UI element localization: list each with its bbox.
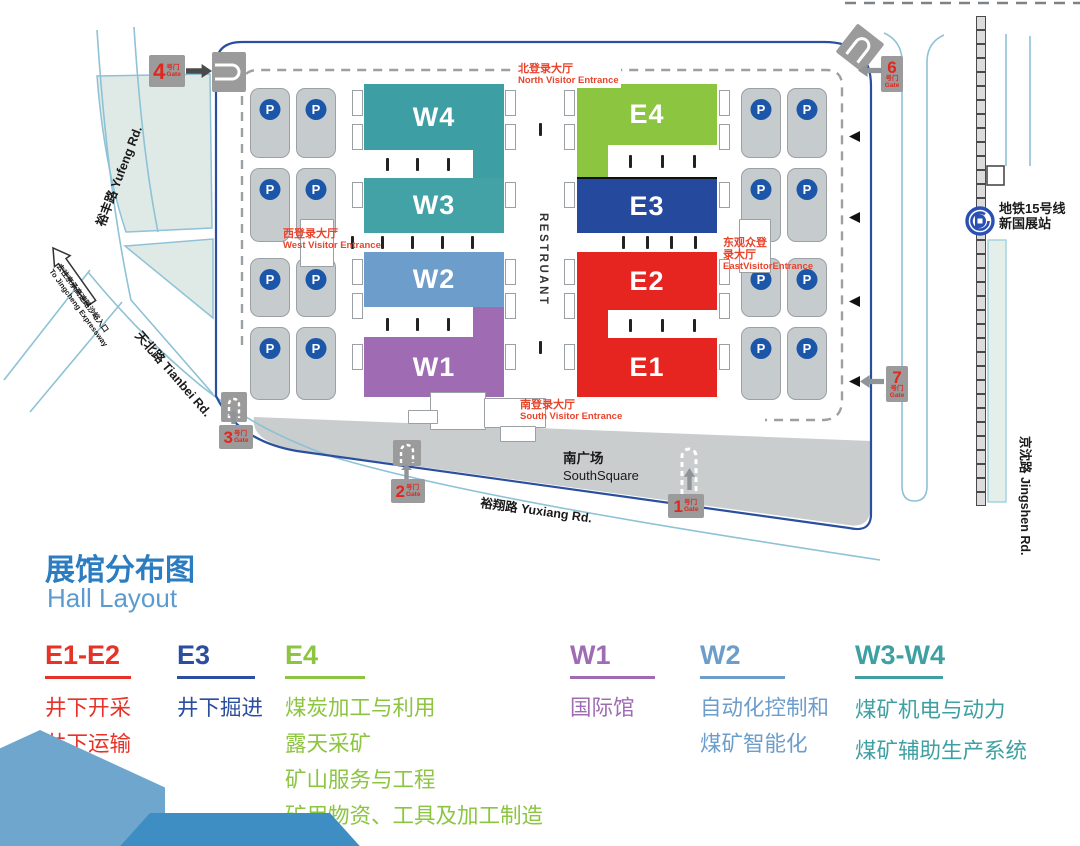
gate-arrow-icon [860,375,884,388]
dock [564,293,575,319]
parking-icon: P [306,99,327,120]
parking-icon: P [751,179,772,200]
corridor-ticks [372,315,464,333]
south-square-label: 南广场 SouthSquare [563,450,639,484]
parking-lot: P [787,88,827,158]
legend-code-w3w4: W3-W4 [855,640,945,671]
legend-subtitle: Hall Layout [47,583,177,614]
dock [719,344,730,370]
parking-icon: P [260,338,281,359]
dock [352,344,363,370]
dock [505,182,516,208]
dock [719,293,730,319]
dock [352,259,363,285]
dock [505,124,516,150]
gate-4: 4 号门Gate [149,55,185,87]
legend-code-e3: E3 [177,640,210,671]
parking-icon: P [260,99,281,120]
parking-lot: P [250,258,290,317]
parking-icon: P [260,179,281,200]
hall-e3-label: E3 [629,191,664,222]
dock [564,259,575,285]
metro-track [976,16,986,506]
platform-box [987,166,1004,185]
corridor-ticks [615,316,710,334]
hall-e4-wing [577,145,608,177]
legend-underline [570,676,655,679]
hall-e4-label: E4 [629,99,664,130]
cross-corridor-ticks [612,235,707,250]
hall-w3-label: W3 [413,190,456,221]
hall-e1-label: E1 [629,352,664,383]
parking-icon: P [306,338,327,359]
hall-e4: E4 [577,84,717,145]
dock [564,124,575,150]
parking-lot: P [741,327,781,400]
hall-w3: W3 [364,178,504,233]
hall-e2-label: E2 [629,266,664,297]
east-entrance-label: 东观众登 录大厅 EastVisitorEntrance [723,237,813,273]
outbuilding [408,410,438,424]
yufeng-road-label: 裕丰路 Yufeng Rd. [90,123,146,229]
legend-underline [285,676,365,679]
dock [564,344,575,370]
legend-code-w1: W1 [570,640,611,671]
hall-w4: W4 [364,84,504,150]
gate-arrow-icon [684,468,695,490]
hall-w1: W1 [364,337,504,397]
legend-underline [700,676,785,679]
jingshen-road-label: 京沈路 Jingshen Rd. [1017,436,1036,555]
parking-icon: P [260,269,281,290]
legend-underline [45,676,131,679]
parking-lot: P [787,168,827,242]
uturn-icon [393,440,421,466]
legend-items-w2: 自动化控制和 煤矿智能化 [700,690,829,762]
hall-w2: W2 [364,252,504,307]
yuxiang-road-label: 裕翔路 Yuxiang Rd. [479,492,593,526]
legend-code-e4: E4 [285,640,318,671]
hall-w2-label: W2 [413,264,456,295]
hall-w4-wing [473,150,504,178]
gate-arrow-icon [401,464,412,479]
gate-2: 2 号门Gate [391,479,425,503]
north-entrance-label: 北登录大厅 North Visitor Entrance [516,62,621,88]
parking-lot: P [787,327,827,400]
gate-arrow-icon [186,64,212,78]
dock [505,293,516,319]
hall-w1-wing [473,307,504,337]
center-tick [534,122,546,137]
corridor-ticks [615,152,710,170]
parking-icon: P [306,269,327,290]
dock [352,182,363,208]
west-entrance-label: 西登录大厅 West Visitor Entrance [283,228,381,252]
map-graphics [0,0,1080,620]
legend-items-w3w4: 煤矿机电与动力 煤矿辅助生产系统 [855,690,1027,772]
parking-icon: P [306,179,327,200]
dock [564,90,575,116]
tianbei-road-label: 天北路 Tianbei Rd. [132,326,217,420]
parking-lot: P [296,88,336,158]
uturn-icon [212,52,246,92]
parking-icon: P [797,99,818,120]
parking-lot: P [250,88,290,158]
dock [505,259,516,285]
gate-3: 3 号门Gate [219,425,253,449]
legend-underline [177,676,255,679]
south-entrance-building [430,392,486,430]
legend-items-e4: 煤炭加工与利用 露天采矿 矿山服务与工程 矿用物资、工具及加工制造 [285,690,543,834]
parking-icon: P [797,338,818,359]
legend-code-e1e2: E1-E2 [45,640,120,671]
dock [352,293,363,319]
parking-lot: P [296,327,336,400]
parking-lot: P [250,327,290,400]
direction-arrowheads [849,131,860,387]
dock [719,90,730,116]
dock [352,124,363,150]
gate-6: 6 号门Gate [881,56,903,92]
dock [505,344,516,370]
legend-items-e3: 井下掘进 [177,690,263,726]
south-entrance-label: 南登录大厅 South Visitor Entrance [520,399,622,423]
dock [564,182,575,208]
south-entrance-building [500,426,536,442]
parking-icon: P [797,179,818,200]
dock [352,90,363,116]
parking-icon: P [751,99,772,120]
gate-1: 1 号门Gate [668,494,704,518]
hall-e1-wing [577,310,608,338]
hall-e1: E1 [577,338,717,397]
dock [719,182,730,208]
metro-station-label: 地铁15号线 新国展站 [999,201,1065,231]
gate-7: 7 号门Gate [886,366,908,402]
road-edges [4,27,1030,560]
parking-lot: P [741,88,781,158]
hall-e2: E2 [577,252,717,310]
expressway-label: 去往京承高速路沙峪入口 To Jingcheng Expressway [47,262,117,348]
hall-w1-label: W1 [413,352,456,383]
parking-icon: P [751,338,772,359]
dock [505,90,516,116]
dock [719,124,730,150]
restaurant-label: RESTRUANT [537,213,549,306]
hall-w4-label: W4 [413,102,456,133]
legend-underline [855,676,943,679]
hall-layout-map: P P P P P P P P P P P P P P P P W4 W3 W2… [0,0,1080,846]
legend-code-w2: W2 [700,640,741,671]
hall-e3: E3 [577,177,717,233]
center-tick [534,340,546,355]
corridor-ticks [372,155,464,173]
uturn-icon [836,23,885,72]
legend-items-w1: 国际馆 [570,690,635,726]
